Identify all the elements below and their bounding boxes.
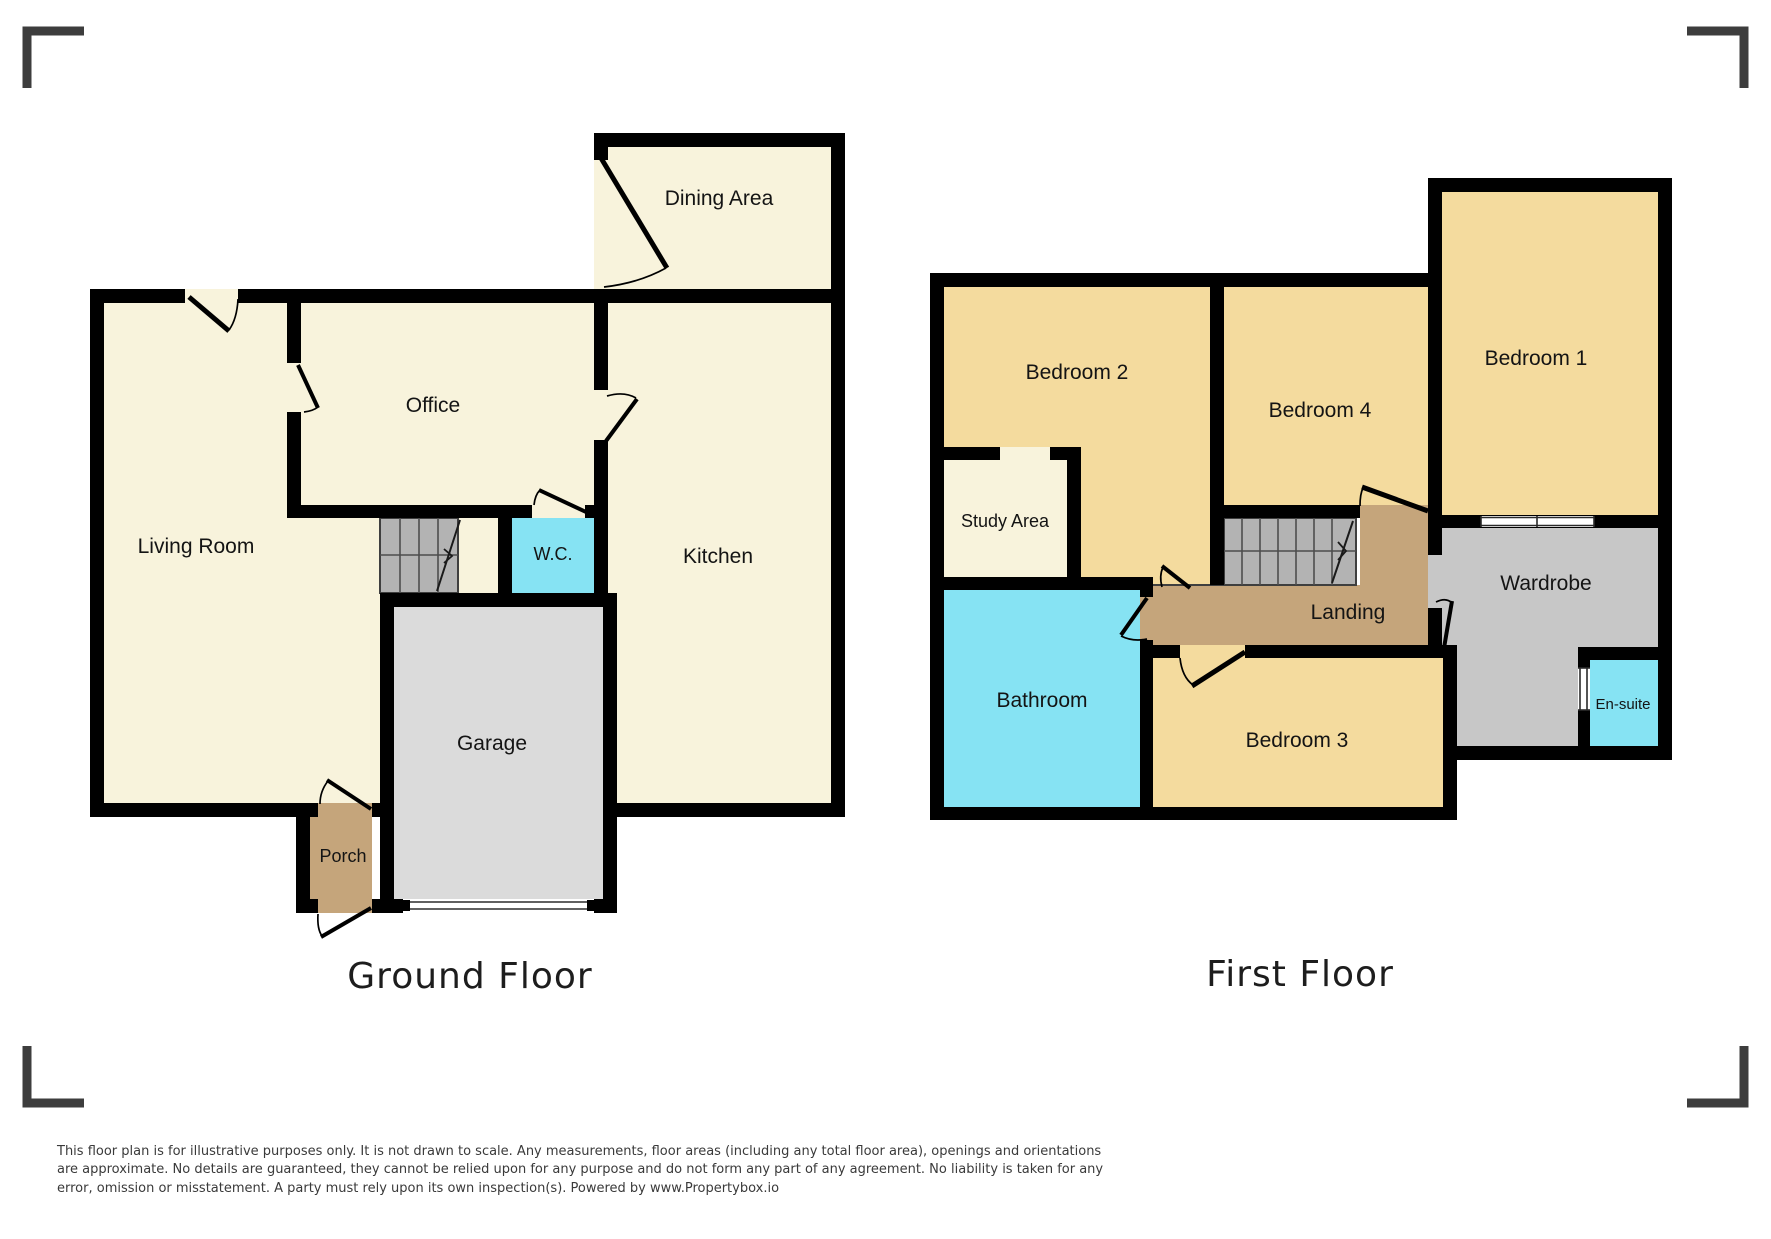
room-label-wardrobe: Wardrobe bbox=[1500, 572, 1591, 595]
corner-mark-bottom-left bbox=[27, 1046, 84, 1103]
room-label-bedroom-4: Bedroom 4 bbox=[1269, 399, 1372, 422]
room-label-garage: Garage bbox=[457, 732, 527, 755]
garage-door bbox=[403, 900, 594, 911]
ground-floor-title: Ground Floor bbox=[347, 956, 592, 997]
room-label-bathroom: Bathroom bbox=[996, 689, 1087, 712]
room-label-dining-area: Dining Area bbox=[665, 187, 774, 210]
bedroom2-lower-floor bbox=[1081, 505, 1210, 585]
room-label-kitchen: Kitchen bbox=[683, 545, 753, 568]
room-label-living-room: Living Room bbox=[138, 535, 255, 558]
stairs-ground-floor bbox=[380, 518, 460, 593]
room-label-bedroom-3: Bedroom 3 bbox=[1246, 729, 1349, 752]
ensuite-pocket-door bbox=[1578, 668, 1590, 710]
landing-arm-floor bbox=[1360, 505, 1428, 585]
bedroom3-floor bbox=[1153, 645, 1443, 807]
stairs-first-floor bbox=[1224, 518, 1356, 585]
corner-mark-bottom-right bbox=[1687, 1046, 1744, 1103]
room-label-en-suite: En-suite bbox=[1595, 696, 1650, 713]
floorplan-page: Dining Area Office Living Room Kitchen W… bbox=[0, 0, 1771, 1239]
ground-floor-plan: Dining Area Office Living Room Kitchen W… bbox=[90, 133, 845, 997]
room-label-study-area: Study Area bbox=[961, 511, 1050, 531]
floorplan-canvas: Dining Area Office Living Room Kitchen W… bbox=[0, 0, 1771, 1239]
room-label-bedroom-2: Bedroom 2 bbox=[1026, 361, 1129, 384]
first-floor-title: First Floor bbox=[1206, 954, 1394, 995]
room-label-wc: W.C. bbox=[534, 544, 573, 564]
room-label-porch: Porch bbox=[319, 846, 366, 866]
disclaimer-text: This floor plan is for illustrative purp… bbox=[57, 1143, 1117, 1198]
kitchen-doorway-floor bbox=[594, 390, 608, 440]
room-label-landing: Landing bbox=[1311, 601, 1386, 624]
room-label-office: Office bbox=[406, 394, 460, 417]
room-label-bedroom-1: Bedroom 1 bbox=[1485, 347, 1588, 370]
first-floor-plan: Bedroom 2 Bedroom 4 Bedroom 1 Study Area… bbox=[930, 178, 1672, 995]
landing-corridor-floor bbox=[1153, 585, 1428, 645]
corner-mark-top-left bbox=[27, 31, 84, 88]
corner-mark-top-right bbox=[1687, 31, 1744, 88]
bedroom1-sliding-panels bbox=[1481, 516, 1594, 527]
